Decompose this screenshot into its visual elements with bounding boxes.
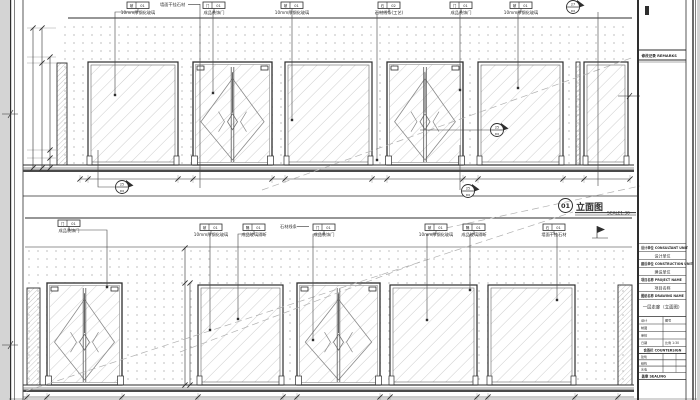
leader-dot xyxy=(459,89,461,91)
plinth-block xyxy=(487,376,492,385)
bubble-detail-number: 25 xyxy=(495,126,499,130)
tag-code: 隔 xyxy=(466,225,470,230)
bubble-sheet-number: D6 xyxy=(495,132,499,136)
tag-caption: 成品玻璃隔断 xyxy=(461,231,487,238)
tag-code: 门 xyxy=(453,3,457,8)
leader-dot xyxy=(106,286,108,288)
tag-code: 门 xyxy=(316,225,320,230)
tb-meta-left: 制图 xyxy=(641,325,647,330)
leader-dot xyxy=(426,319,428,321)
tag-number: 01 xyxy=(71,222,76,226)
wall-return-strip xyxy=(57,63,67,165)
tag-number: 01 xyxy=(523,4,528,8)
tag-number: 01 xyxy=(140,4,145,8)
tb-row-header: 项目名称 PROJECT NAME xyxy=(641,277,682,282)
plinth-block xyxy=(386,156,392,165)
floor-band xyxy=(23,170,634,173)
tb-row-header: 设计单位 CONSULTANT UNIT xyxy=(641,245,689,250)
bubble-detail-number: 27 xyxy=(571,3,575,7)
tb-cs-left: 建筑 xyxy=(641,354,647,359)
leader-dot xyxy=(209,329,211,331)
bubble-detail-number: 25 xyxy=(120,183,124,187)
door-corner-bracket xyxy=(391,66,398,70)
plinth-block xyxy=(389,376,394,385)
plinth-block xyxy=(174,156,179,165)
tb-row-value: 设计单位 xyxy=(655,252,671,258)
leader-dot xyxy=(517,87,519,89)
tag-code: 玻 xyxy=(284,3,288,8)
leader-dot xyxy=(212,92,214,94)
floor-band xyxy=(23,390,634,393)
door-corner-bracket xyxy=(261,66,268,70)
tb-row-value: 一层走廊（立面图） xyxy=(643,304,683,311)
material-label: 墙面干挂石材 xyxy=(160,1,185,8)
tag-code: 玻 xyxy=(513,3,517,8)
leader-dot xyxy=(237,318,239,320)
drawing-content: 玻0110mm厚钢化玻璃门01成品装饰门玻0110mm厚钢化玻璃石02石材线条(… xyxy=(0,0,700,400)
tag-code: 石 xyxy=(546,226,550,230)
cad-canvas: 玻0110mm厚钢化玻璃门01成品装饰门玻0110mm厚钢化玻璃石02石材线条(… xyxy=(0,0,700,400)
tag-code: 门 xyxy=(206,3,210,8)
tag-code: 玻 xyxy=(428,225,432,230)
tag-code: 隔 xyxy=(246,225,250,230)
tb-cs-left: 水电 xyxy=(641,367,647,372)
plinth-block xyxy=(296,376,302,385)
tag-number: 01 xyxy=(326,226,331,230)
tb-meta-right: 比例 1:30 xyxy=(665,340,679,345)
tb-meta-left: 审核 xyxy=(641,333,647,338)
tag-caption: 成品装饰门 xyxy=(59,227,80,234)
tag-caption: 石材线条(工艺) xyxy=(375,9,404,16)
plinth-block xyxy=(583,156,588,165)
bubble-sheet-number: D6 xyxy=(466,193,470,197)
tag-caption: 成品玻璃隔断 xyxy=(241,231,267,238)
elevation-top xyxy=(23,18,634,183)
plinth-block xyxy=(197,376,202,385)
leader-dot xyxy=(376,159,378,161)
plinth-block xyxy=(624,156,629,165)
plinth-block xyxy=(268,156,274,165)
tag-number: 01 xyxy=(476,226,481,230)
leader-dot xyxy=(291,119,293,121)
tag-number: 01 xyxy=(294,4,299,8)
material-label: 石材线条 xyxy=(280,223,298,230)
tag-caption: 成品装饰门 xyxy=(314,231,335,238)
plinth-block xyxy=(376,376,382,385)
page-margin-left xyxy=(0,0,9,400)
plinth-block xyxy=(192,156,198,165)
tb-meta-left: 日期 xyxy=(641,340,647,345)
glass-pane xyxy=(91,65,175,162)
leader-dot xyxy=(312,339,314,341)
plinth-block xyxy=(279,376,284,385)
wall-return-strip xyxy=(27,288,40,385)
tag-caption: 10mm厚钢化玻璃 xyxy=(419,231,453,238)
leader-dot xyxy=(114,94,116,96)
leader-dot xyxy=(469,289,471,291)
tag-code: 石 xyxy=(381,4,385,8)
tb-row-header: 建设单位 CONSTRUCTION UNIT xyxy=(640,261,694,266)
bubble-sheet-number: D6 xyxy=(120,189,124,193)
tag-caption: 成品装饰门 xyxy=(451,9,472,16)
plinth-block xyxy=(459,156,465,165)
glass-pane xyxy=(201,288,280,382)
door-corner-bracket xyxy=(111,287,118,291)
tag-number: 02 xyxy=(391,4,396,8)
view-number: 01 xyxy=(561,202,571,210)
door-corner-bracket xyxy=(369,287,376,291)
door-corner-bracket xyxy=(51,287,58,291)
bubble-detail-number: 25 xyxy=(466,187,470,191)
door-corner-bracket xyxy=(452,66,459,70)
plinth-block xyxy=(477,156,482,165)
tag-number: 01 xyxy=(216,4,221,8)
tb-row-value: 项目名称 xyxy=(655,284,671,290)
glass-pane xyxy=(288,65,369,162)
tb-row-header: 图纸名称 DRAWING NAME xyxy=(641,293,684,298)
tb-remarks-header: 修改记录 REMARKS xyxy=(641,53,678,58)
plinth-block xyxy=(118,376,124,385)
tag-number: 01 xyxy=(556,226,561,230)
plinth-block xyxy=(87,156,92,165)
tag-number: 01 xyxy=(438,226,443,230)
door-corner-bracket xyxy=(197,66,204,70)
plinth-block xyxy=(284,156,289,165)
plinth-block xyxy=(473,376,478,385)
tb-meta-right: 图号 xyxy=(665,318,671,323)
plinth-block xyxy=(368,156,373,165)
tag-number: 01 xyxy=(256,226,261,230)
plinth-block xyxy=(559,156,564,165)
tag-number: 01 xyxy=(213,226,218,230)
tag-number: 01 xyxy=(463,4,468,8)
tb-meta-left: 设计 xyxy=(641,318,647,323)
tb-cs-left: 结构 xyxy=(641,360,647,365)
tb-row-value: 建设单位 xyxy=(655,268,671,274)
tb-sealing-header: 盖章 SEALING xyxy=(642,374,667,379)
tag-caption: 10mm厚钢化玻璃 xyxy=(504,9,538,16)
glass-pane xyxy=(481,65,560,162)
glass-pane xyxy=(587,65,625,162)
glass-pane xyxy=(393,288,474,382)
door-corner-bracket xyxy=(301,287,308,291)
leader-dot xyxy=(556,299,558,301)
tag-code: 门 xyxy=(61,221,65,226)
tag-caption: 10mm厚钢化玻璃 xyxy=(275,9,309,16)
bubble-sheet-number: D6 xyxy=(571,9,575,13)
tb-countersign-header: 会签栏 COUNTERSIGN xyxy=(644,348,682,353)
tag-caption: 10mm厚钢化玻璃 xyxy=(194,231,228,238)
plinth-block xyxy=(571,376,576,385)
tag-caption: 成品装饰门 xyxy=(204,9,225,16)
tb-corner-mark xyxy=(645,6,649,15)
drawing-sheet: 玻0110mm厚钢化玻璃门01成品装饰门玻0110mm厚钢化玻璃石02石材线条(… xyxy=(0,0,700,400)
wall-return-strip xyxy=(618,285,632,385)
tag-code: 玻 xyxy=(130,3,134,8)
tag-caption: 墙面干挂石材 xyxy=(541,231,566,238)
tag-caption: 10mm厚钢化玻璃 xyxy=(121,9,155,16)
tag-code: 玻 xyxy=(203,225,207,230)
view-name: 立面图 xyxy=(576,201,603,213)
glass-pane xyxy=(491,288,572,382)
